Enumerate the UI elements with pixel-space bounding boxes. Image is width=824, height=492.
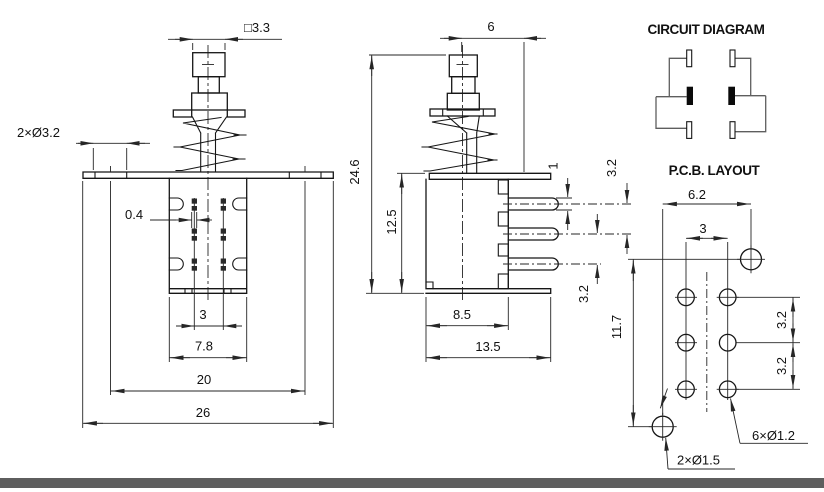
dim-flange-depth: 13.5	[475, 339, 500, 354]
dim-pin-row-pitch-lower: 3.2	[774, 357, 789, 375]
dim-body-width: 7.8	[195, 339, 213, 354]
front-view: □3.3 2×Ø3.2 0.4 3 7.8 2	[17, 20, 333, 428]
technical-drawing-page: □3.3 2×Ø3.2 0.4 3 7.8 2	[0, 0, 824, 492]
circuit-pole-left	[656, 50, 693, 138]
side-pins	[503, 198, 631, 270]
leader-mount-holes: 2×Ø1.5	[677, 453, 720, 468]
dim-body-depth: 8.5	[453, 307, 471, 322]
pcb-dimensions: 6.2 3 11.7 3.2 3.2	[609, 187, 793, 427]
drawing-canvas: □3.3 2×Ø3.2 0.4 3 7.8 2	[0, 0, 824, 492]
dim-pin-row-pitch-upper: 3.2	[774, 311, 789, 329]
dim-terminal-spacing: 3	[199, 307, 206, 322]
dim-mount-hole-span-x: 6.2	[688, 187, 706, 202]
dim-pin-thickness: 1	[546, 162, 561, 169]
dim-terminal-width: 0.4	[125, 207, 143, 222]
circuit-diagram-title: CIRCUIT DIAGRAM	[648, 22, 765, 37]
front-spring	[174, 118, 246, 171]
dim-hole-spacing: 20	[197, 372, 211, 387]
pcb-layout-title: P.C.B. LAYOUT	[669, 163, 761, 178]
pcb-layout: P.C.B. LAYOUT 6.2	[609, 163, 808, 469]
dim-cap-width: □3.3	[244, 20, 270, 35]
dim-pin-col-spacing: 3	[699, 221, 706, 236]
dim-mount-holes: 2×Ø3.2	[17, 125, 60, 140]
side-spring	[422, 117, 497, 172]
side-flange	[429, 173, 550, 179]
leader-pin-holes: 6×Ø1.2	[752, 428, 795, 443]
side-dimensions: 6 24.6 12.5 1 3.2 3.2	[347, 19, 627, 362]
dim-pin-pitch-lower: 3.2	[576, 285, 591, 303]
dim-pin-pitch-upper: 3.2	[604, 159, 619, 177]
circuit-diagram: CIRCUIT DIAGRAM	[648, 22, 766, 138]
circuit-pole-right	[728, 50, 765, 138]
front-button-outline	[173, 53, 245, 172]
dim-body-height: 12.5	[384, 209, 399, 234]
front-terminals	[192, 199, 226, 271]
dim-button-offset: 6	[487, 19, 494, 34]
side-body	[426, 179, 631, 293]
side-view: 6 24.6 12.5 1 3.2 3.2	[347, 19, 631, 362]
footer-bar	[0, 478, 824, 488]
front-dimensions: □3.3 2×Ø3.2 0.4 3 7.8 2	[17, 20, 333, 428]
dim-total-height: 24.6	[347, 159, 362, 184]
pcb-leaders: 6×Ø1.2 2×Ø1.5	[660, 389, 808, 470]
dim-mount-hole-span-y: 11.7	[609, 315, 624, 339]
dim-flange-width: 26	[196, 405, 210, 420]
